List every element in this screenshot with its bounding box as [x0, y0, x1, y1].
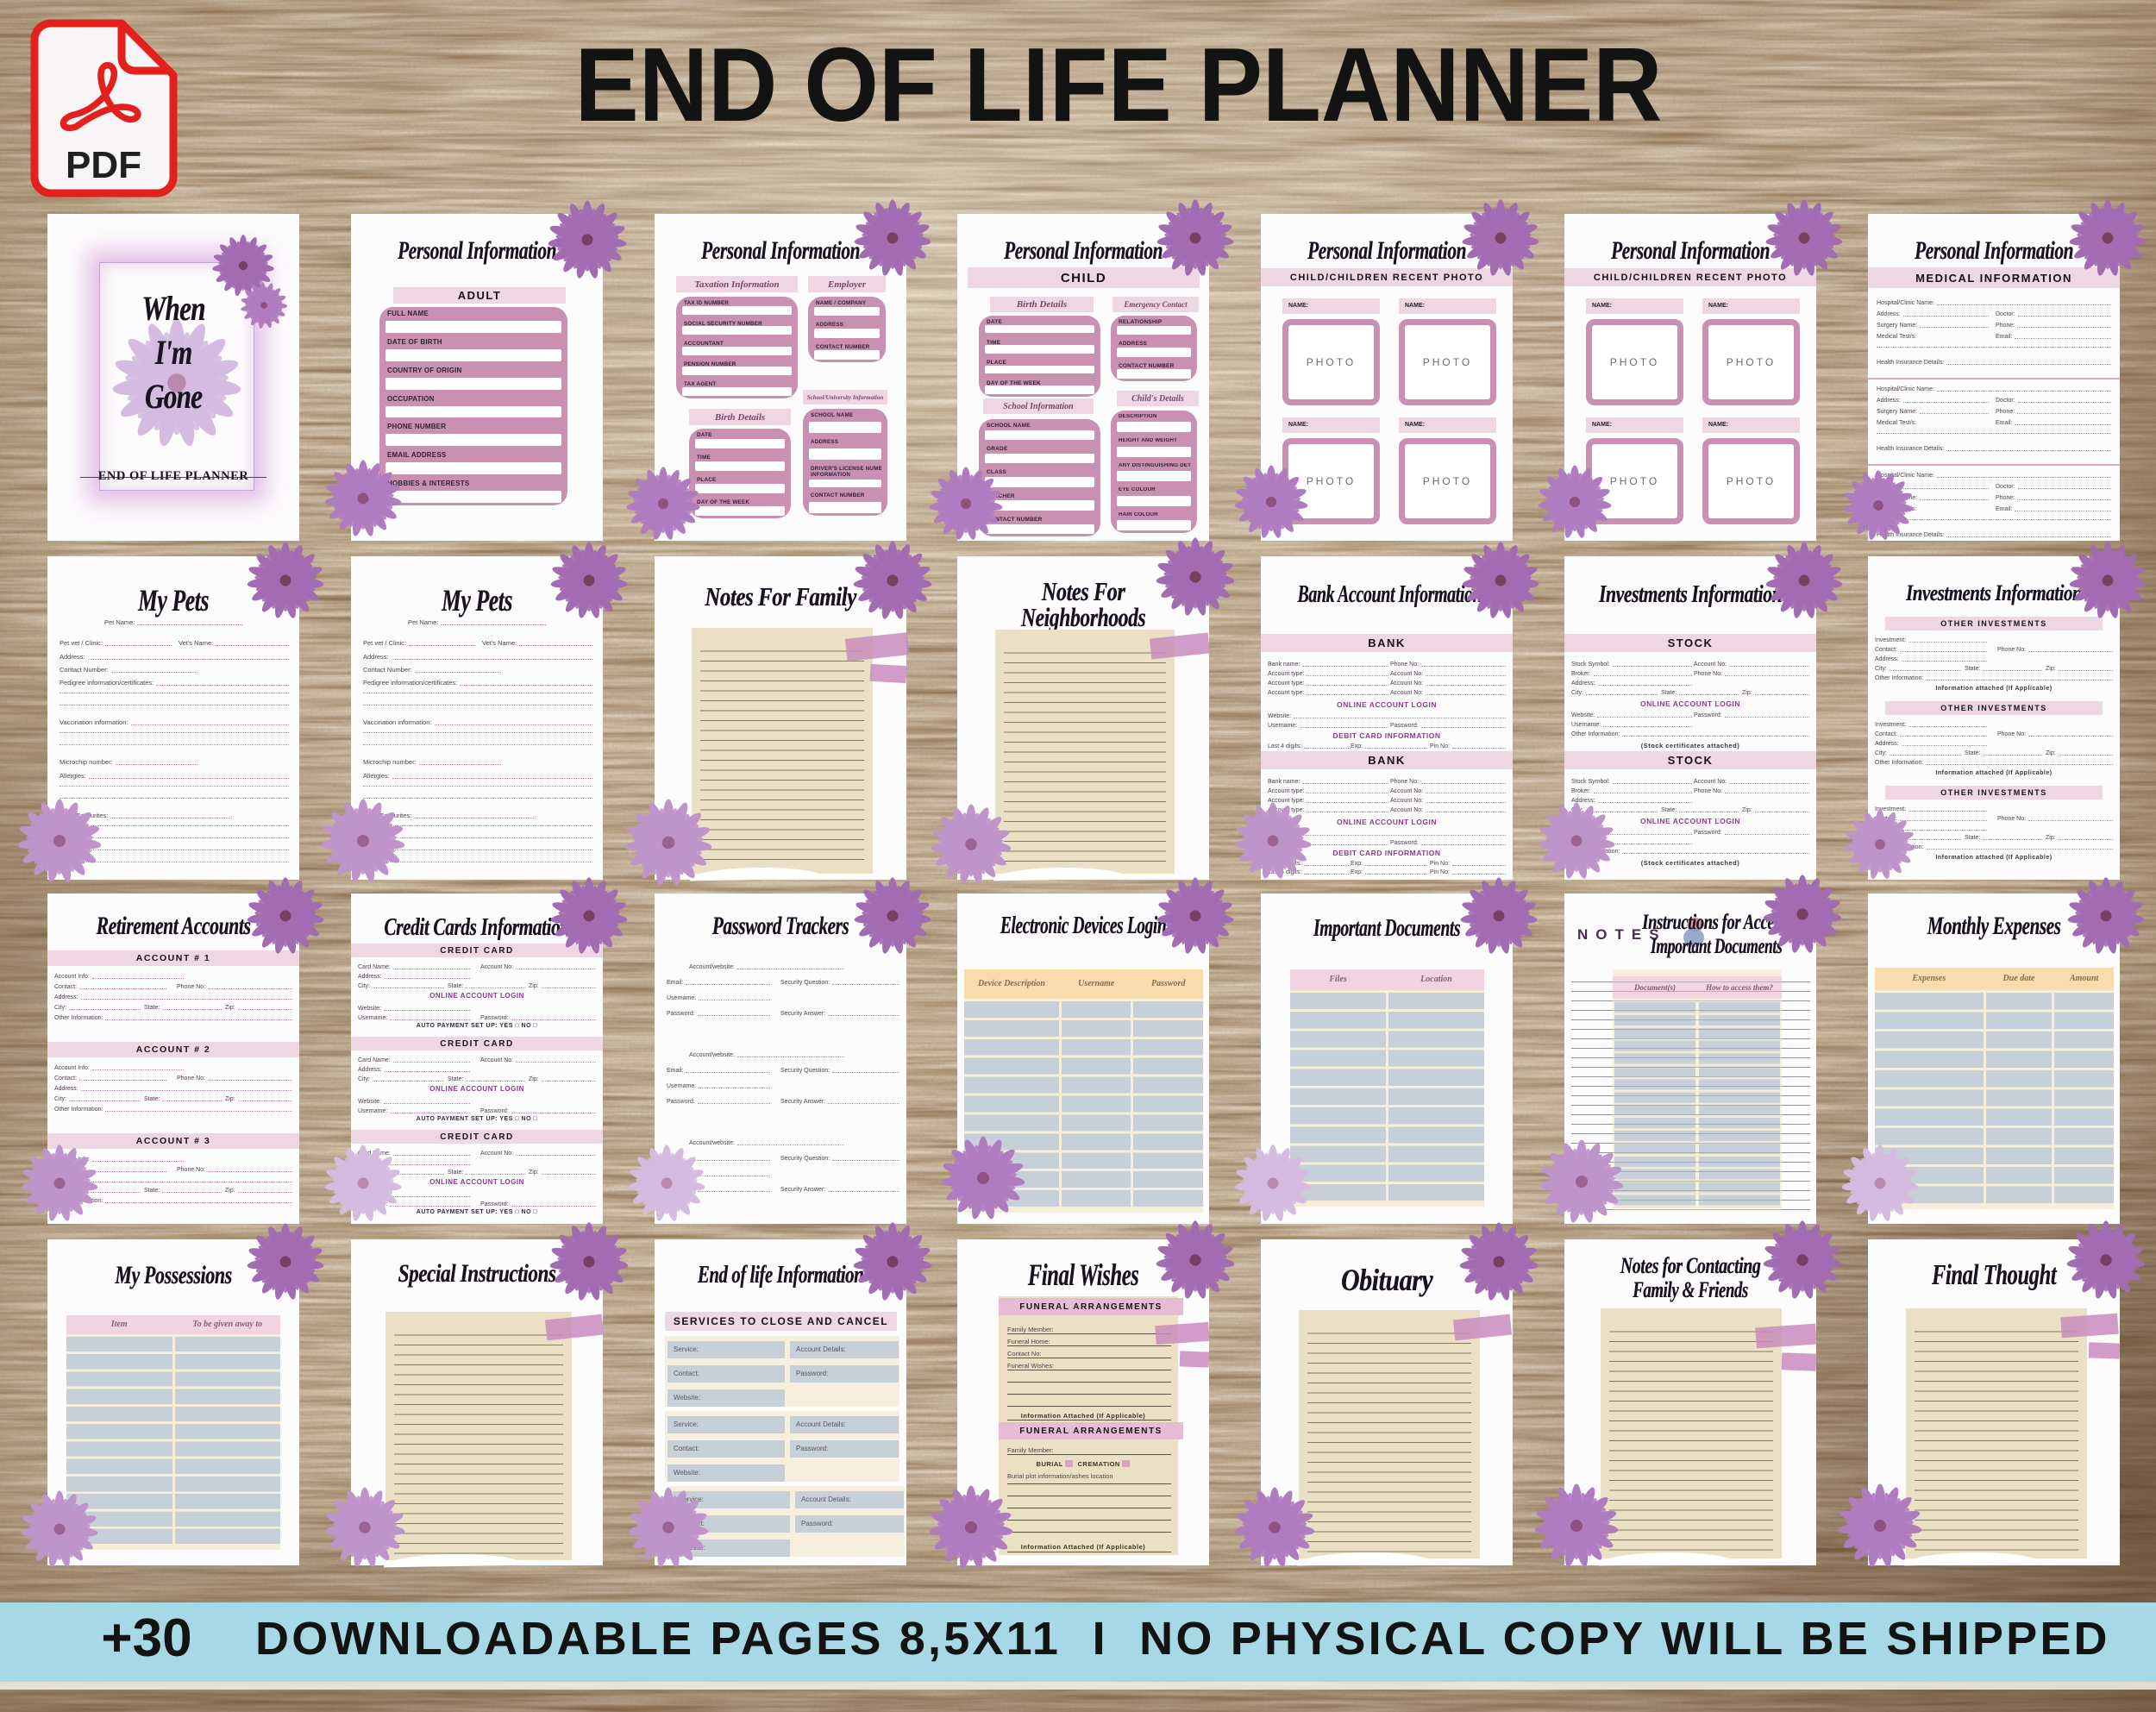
- svg-text:PDF: PDF: [66, 144, 141, 186]
